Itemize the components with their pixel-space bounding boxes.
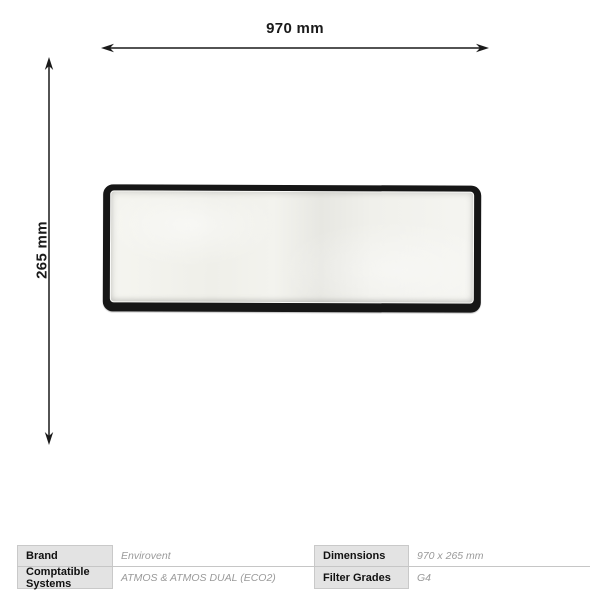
width-dimension-label: 970 mm xyxy=(100,20,490,37)
compatible-systems-value: ATMOS & ATMOS DUAL (ECO2) xyxy=(113,567,304,589)
table-gap xyxy=(304,545,314,566)
compatible-systems-label: Comptatible Systems xyxy=(17,567,113,589)
specification-table: Brand Envirovent Dimensions 970 x 265 mm… xyxy=(17,545,590,589)
filter-media-surface xyxy=(110,190,474,303)
dimensions-label: Dimensions xyxy=(314,545,409,566)
height-dimension-arrow xyxy=(43,56,55,446)
table-row: Brand Envirovent Dimensions 970 x 265 mm xyxy=(17,545,590,566)
table-gap xyxy=(304,567,314,589)
brand-value: Envirovent xyxy=(113,545,304,566)
filter-grades-label: Filter Grades xyxy=(314,567,409,589)
width-dimension-arrow xyxy=(100,42,490,54)
filter-grades-value: G4 xyxy=(409,567,590,589)
filter-panel-image xyxy=(103,184,481,312)
dimensions-value: 970 x 265 mm xyxy=(409,545,590,566)
product-diagram-canvas: 970 mm 265 mm Brand Envirovent Dimension… xyxy=(0,0,600,600)
brand-label: Brand xyxy=(17,545,113,566)
table-row: Comptatible Systems ATMOS & ATMOS DUAL (… xyxy=(17,567,590,589)
